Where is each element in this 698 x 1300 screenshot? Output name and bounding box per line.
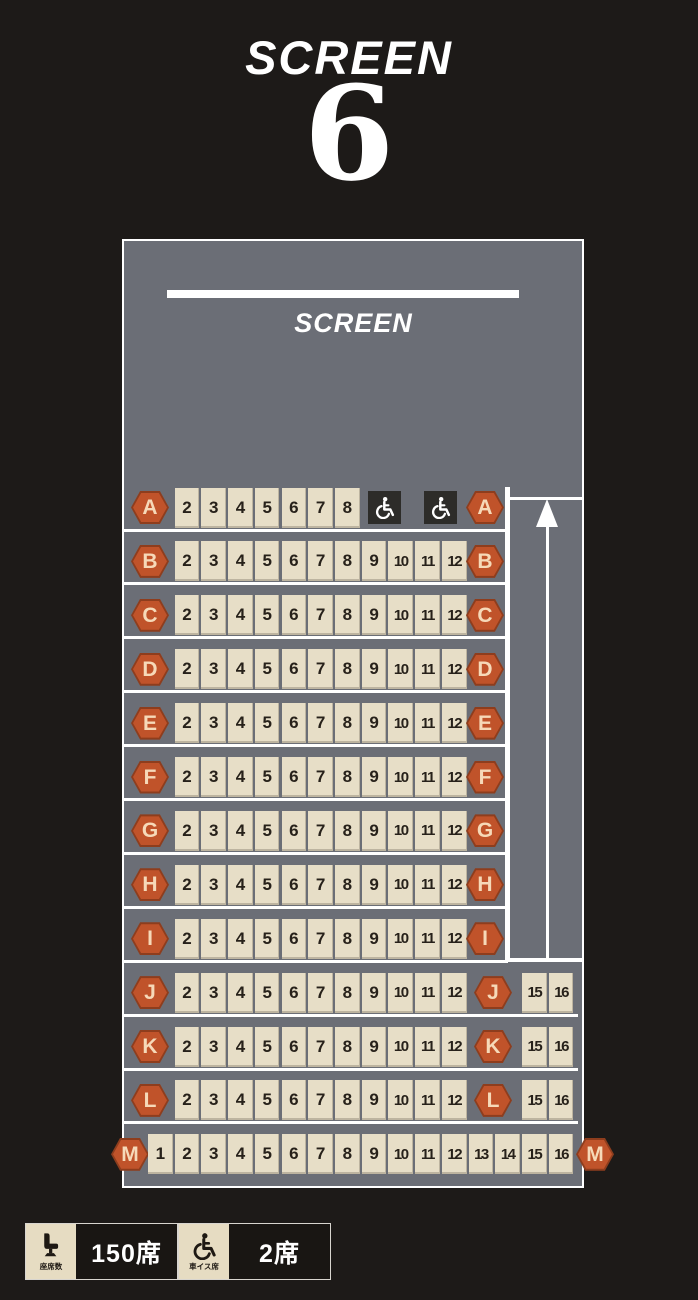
seat-F11[interactable]: 11 [415, 757, 440, 797]
seat-L16[interactable]: 16 [549, 1080, 574, 1120]
seat-B6[interactable]: 6 [282, 541, 307, 581]
seat-A3[interactable]: 3 [201, 488, 226, 528]
seat-F6[interactable]: 6 [282, 757, 307, 797]
seat-M1[interactable]: 1 [148, 1134, 173, 1174]
seat-F7[interactable]: 7 [308, 757, 333, 797]
row-badge-inner: E [133, 709, 167, 738]
seat-E10[interactable]: 10 [388, 703, 413, 743]
seat-L8[interactable]: 8 [335, 1080, 360, 1120]
seat-number: 3 [209, 875, 218, 895]
seat-E12[interactable]: 12 [442, 703, 467, 743]
seat-number: 5 [262, 875, 271, 895]
seat-M10[interactable]: 10 [388, 1134, 413, 1174]
seat-number: 6 [289, 498, 298, 518]
seat-K6[interactable]: 6 [282, 1027, 307, 1067]
seat-J16[interactable]: 16 [549, 973, 574, 1013]
seat-H8[interactable]: 8 [335, 865, 360, 905]
seat-number: 10 [394, 769, 408, 786]
seat-H10[interactable]: 10 [388, 865, 413, 905]
seat-E7[interactable]: 7 [308, 703, 333, 743]
seat-number: 16 [554, 984, 568, 1001]
row-A-badge-right: A [466, 491, 504, 524]
row-badge-inner: H [133, 870, 167, 899]
seat-number: 2 [182, 551, 191, 571]
seat-number: 11 [421, 661, 434, 678]
seat-E6[interactable]: 6 [282, 703, 307, 743]
seat-C6[interactable]: 6 [282, 595, 307, 635]
seat-number: 7 [316, 1144, 325, 1164]
seat-number: 8 [343, 1090, 352, 1110]
seat-H5[interactable]: 5 [255, 865, 280, 905]
seat-number: 10 [394, 661, 408, 678]
seat-H6[interactable]: 6 [282, 865, 307, 905]
seat-number: 8 [343, 498, 352, 518]
seat-number: 1 [156, 1144, 165, 1164]
seat-L15[interactable]: 15 [522, 1080, 547, 1120]
seat-F5[interactable]: 5 [255, 757, 280, 797]
seat-D2[interactable]: 2 [175, 649, 200, 689]
seat-E11[interactable]: 11 [415, 703, 440, 743]
seat-number: 9 [369, 1144, 378, 1164]
seat-number: 7 [316, 821, 325, 841]
seat-A4[interactable]: 4 [228, 488, 253, 528]
row-badge-inner: E [468, 709, 502, 738]
seat-C8[interactable]: 8 [335, 595, 360, 635]
row-label: B [477, 551, 492, 572]
row-L-underline [124, 1121, 578, 1124]
row-badge-inner: D [468, 655, 502, 684]
seat-K11[interactable]: 11 [415, 1027, 440, 1067]
seat-number: 10 [394, 607, 408, 624]
seat-L11[interactable]: 11 [415, 1080, 440, 1120]
seat-G9[interactable]: 9 [362, 811, 387, 851]
seat-number: 9 [369, 1090, 378, 1110]
seat-L5[interactable]: 5 [255, 1080, 280, 1120]
seat-B5[interactable]: 5 [255, 541, 280, 581]
seat-I3[interactable]: 3 [201, 919, 226, 959]
seat-B4[interactable]: 4 [228, 541, 253, 581]
seat-J4[interactable]: 4 [228, 973, 253, 1013]
seat-L2[interactable]: 2 [175, 1080, 200, 1120]
row-F-badge-left: F [131, 761, 169, 794]
seat-number: 3 [209, 767, 218, 787]
seat-number: 8 [343, 821, 352, 841]
seat-M5[interactable]: 5 [255, 1134, 280, 1174]
row-L-badge-left: L [131, 1084, 169, 1117]
seat-number: 7 [316, 929, 325, 949]
seat-K16[interactable]: 16 [549, 1027, 574, 1067]
seat-L12[interactable]: 12 [442, 1080, 467, 1120]
row-label: M [121, 1144, 139, 1165]
legend-seat-tile: 座席数 [26, 1224, 76, 1279]
seat-J10[interactable]: 10 [388, 973, 413, 1013]
seat-I10[interactable]: 10 [388, 919, 413, 959]
seat-number: 9 [369, 875, 378, 895]
seat-K3[interactable]: 3 [201, 1027, 226, 1067]
seat-H2[interactable]: 2 [175, 865, 200, 905]
seat-G2[interactable]: 2 [175, 811, 200, 851]
row-badge-inner: A [468, 493, 502, 522]
seat-number: 10 [394, 876, 408, 893]
seat-L10[interactable]: 10 [388, 1080, 413, 1120]
seat-B3[interactable]: 3 [201, 541, 226, 581]
seat-number: 3 [209, 659, 218, 679]
seat-G7[interactable]: 7 [308, 811, 333, 851]
row-label: I [482, 928, 488, 949]
seat-J15[interactable]: 15 [522, 973, 547, 1013]
seat-E2[interactable]: 2 [175, 703, 200, 743]
legend: 座席数 150席 車イス席 2席 [25, 1223, 331, 1280]
seat-number: 12 [447, 984, 461, 1001]
seat-number: 9 [369, 929, 378, 949]
row-C-underline [124, 636, 508, 639]
seat-E4[interactable]: 4 [228, 703, 253, 743]
seat-C11[interactable]: 11 [415, 595, 440, 635]
seat-D3[interactable]: 3 [201, 649, 226, 689]
seat-number: 3 [209, 1037, 218, 1057]
seat-A7[interactable]: 7 [308, 488, 333, 528]
seat-L6[interactable]: 6 [282, 1080, 307, 1120]
row-badge-inner: J [476, 978, 510, 1007]
seat-number: 12 [447, 769, 461, 786]
seat-number: 10 [394, 715, 408, 732]
seat-number: 4 [236, 1090, 245, 1110]
wheelchair-seat-2[interactable] [424, 491, 457, 524]
row-K-underline [124, 1068, 578, 1071]
seat-B9[interactable]: 9 [362, 541, 387, 581]
seat-M13[interactable]: 13 [469, 1134, 494, 1174]
seat-number: 7 [316, 498, 325, 518]
row-I-badge-left: I [131, 922, 169, 955]
row-label: J [487, 982, 499, 1003]
seat-H3[interactable]: 3 [201, 865, 226, 905]
seat-number: 2 [182, 659, 191, 679]
seat-H12[interactable]: 12 [442, 865, 467, 905]
seat-number: 6 [289, 929, 298, 949]
legend-seat-count: 150席 [76, 1224, 177, 1279]
seat-J12[interactable]: 12 [442, 973, 467, 1013]
seat-number: 3 [209, 1090, 218, 1110]
seat-number: 6 [289, 551, 298, 571]
seat-I11[interactable]: 11 [415, 919, 440, 959]
seat-I12[interactable]: 12 [442, 919, 467, 959]
wheelchair-seat-1[interactable] [368, 491, 401, 524]
seat-number: 9 [369, 551, 378, 571]
seat-G6[interactable]: 6 [282, 811, 307, 851]
seat-A8[interactable]: 8 [335, 488, 360, 528]
seat-H7[interactable]: 7 [308, 865, 333, 905]
seat-number: 10 [394, 930, 408, 947]
row-A-badge-left: A [131, 491, 169, 524]
seat-C5[interactable]: 5 [255, 595, 280, 635]
row-badge-inner: F [468, 763, 502, 792]
seat-G8[interactable]: 8 [335, 811, 360, 851]
seat-number: 10 [394, 1038, 408, 1055]
seat-K9[interactable]: 9 [362, 1027, 387, 1067]
seat-number: 7 [316, 1090, 325, 1110]
seat-number: 5 [262, 713, 271, 733]
seat-number: 6 [289, 875, 298, 895]
seat-number: 8 [343, 767, 352, 787]
seat-A5[interactable]: 5 [255, 488, 280, 528]
seat-D8[interactable]: 8 [335, 649, 360, 689]
seat-L4[interactable]: 4 [228, 1080, 253, 1120]
seat-number: 16 [554, 1146, 568, 1163]
seat-number: 15 [528, 984, 542, 1001]
seat-F2[interactable]: 2 [175, 757, 200, 797]
seat-E8[interactable]: 8 [335, 703, 360, 743]
seat-M8[interactable]: 8 [335, 1134, 360, 1174]
seat-G10[interactable]: 10 [388, 811, 413, 851]
seat-number: 6 [289, 1090, 298, 1110]
seat-K2[interactable]: 2 [175, 1027, 200, 1067]
seat-I2[interactable]: 2 [175, 919, 200, 959]
seat-number: 11 [421, 1146, 434, 1163]
seat-H9[interactable]: 9 [362, 865, 387, 905]
row-label: E [143, 713, 157, 734]
seat-E3[interactable]: 3 [201, 703, 226, 743]
seat-number: 6 [289, 605, 298, 625]
seat-K10[interactable]: 10 [388, 1027, 413, 1067]
seat-number: 12 [447, 661, 461, 678]
seat-F8[interactable]: 8 [335, 757, 360, 797]
seat-number: 10 [394, 553, 408, 570]
seat-F12[interactable]: 12 [442, 757, 467, 797]
seat-D12[interactable]: 12 [442, 649, 467, 689]
row-G-badge-left: G [131, 814, 169, 847]
seat-number: 12 [447, 553, 461, 570]
seat-number: 2 [182, 929, 191, 949]
seat-K8[interactable]: 8 [335, 1027, 360, 1067]
seat-number: 2 [182, 821, 191, 841]
seat-J9[interactable]: 9 [362, 973, 387, 1013]
seat-number: 5 [262, 605, 271, 625]
seat-J5[interactable]: 5 [255, 973, 280, 1013]
seat-number: 3 [209, 551, 218, 571]
seat-M16[interactable]: 16 [549, 1134, 574, 1174]
row-badge-inner: D [133, 655, 167, 684]
seat-number: 4 [236, 551, 245, 571]
seat-number: 2 [182, 875, 191, 895]
seat-G5[interactable]: 5 [255, 811, 280, 851]
seat-number: 11 [421, 822, 434, 839]
seat-G4[interactable]: 4 [228, 811, 253, 851]
row-badge-inner: K [476, 1032, 510, 1061]
seat-M14[interactable]: 14 [495, 1134, 520, 1174]
seat-number: 9 [369, 713, 378, 733]
seat-number: 11 [421, 930, 434, 947]
seat-B10[interactable]: 10 [388, 541, 413, 581]
row-I-badge-right: I [466, 922, 504, 955]
seat-M11[interactable]: 11 [415, 1134, 440, 1174]
row-label: G [142, 820, 158, 841]
seat-E5[interactable]: 5 [255, 703, 280, 743]
row-label: F [479, 767, 492, 788]
seat-number: 3 [209, 605, 218, 625]
seat-number: 4 [236, 983, 245, 1003]
seat-number: 4 [236, 713, 245, 733]
seat-number: 7 [316, 767, 325, 787]
seat-C12[interactable]: 12 [442, 595, 467, 635]
seat-J2[interactable]: 2 [175, 973, 200, 1013]
seat-K4[interactable]: 4 [228, 1027, 253, 1067]
row-B-underline [124, 582, 508, 585]
seat-number: 7 [316, 659, 325, 679]
row-H-badge-left: H [131, 868, 169, 901]
seat-number: 11 [421, 1092, 434, 1109]
seat-C9[interactable]: 9 [362, 595, 387, 635]
seat-number: 10 [394, 984, 408, 1001]
seat-K12[interactable]: 12 [442, 1027, 467, 1067]
seat-D6[interactable]: 6 [282, 649, 307, 689]
seat-B12[interactable]: 12 [442, 541, 467, 581]
row-badge-inner: G [468, 816, 502, 845]
seat-K7[interactable]: 7 [308, 1027, 333, 1067]
seat-J3[interactable]: 3 [201, 973, 226, 1013]
seat-C7[interactable]: 7 [308, 595, 333, 635]
seat-number: 3 [209, 498, 218, 518]
seat-I9[interactable]: 9 [362, 919, 387, 959]
seat-L9[interactable]: 9 [362, 1080, 387, 1120]
seat-B8[interactable]: 8 [335, 541, 360, 581]
seat-J11[interactable]: 11 [415, 973, 440, 1013]
seat-number: 5 [262, 821, 271, 841]
seat-D10[interactable]: 10 [388, 649, 413, 689]
seat-F3[interactable]: 3 [201, 757, 226, 797]
seat-I4[interactable]: 4 [228, 919, 253, 959]
seat-number: 7 [316, 551, 325, 571]
seat-M15[interactable]: 15 [522, 1134, 547, 1174]
seat-H11[interactable]: 11 [415, 865, 440, 905]
seat-I8[interactable]: 8 [335, 919, 360, 959]
seat-C10[interactable]: 10 [388, 595, 413, 635]
seat-M9[interactable]: 9 [362, 1134, 387, 1174]
seat-K5[interactable]: 5 [255, 1027, 280, 1067]
seat-M12[interactable]: 12 [442, 1134, 467, 1174]
seat-number: 12 [447, 876, 461, 893]
seat-L7[interactable]: 7 [308, 1080, 333, 1120]
seat-I5[interactable]: 5 [255, 919, 280, 959]
legend-wheelchair-tile: 車イス席 [177, 1224, 229, 1279]
seat-number: 6 [289, 1144, 298, 1164]
seat-B2[interactable]: 2 [175, 541, 200, 581]
seat-number: 4 [236, 605, 245, 625]
row-badge-inner: M [578, 1140, 612, 1169]
seat-B11[interactable]: 11 [415, 541, 440, 581]
seat-number: 7 [316, 875, 325, 895]
seat-C3[interactable]: 3 [201, 595, 226, 635]
seat-number: 11 [421, 1038, 434, 1055]
seat-number: 8 [343, 983, 352, 1003]
seat-G3[interactable]: 3 [201, 811, 226, 851]
seat-number: 7 [316, 713, 325, 733]
seat-rows: A2345678AB23456789101112BC23456789101112… [0, 0, 698, 1300]
seat-number: 4 [236, 498, 245, 518]
row-label: F [144, 767, 157, 788]
seat-number: 7 [316, 605, 325, 625]
seat-number: 12 [447, 1146, 461, 1163]
seat-M4[interactable]: 4 [228, 1134, 253, 1174]
seat-number: 3 [209, 713, 218, 733]
row-E-underline [124, 744, 508, 747]
row-label: C [142, 605, 157, 626]
seat-D4[interactable]: 4 [228, 649, 253, 689]
seat-I7[interactable]: 7 [308, 919, 333, 959]
row-label: E [478, 713, 492, 734]
seat-number: 4 [236, 929, 245, 949]
row-label: M [586, 1144, 604, 1165]
seat-J8[interactable]: 8 [335, 973, 360, 1013]
seat-C4[interactable]: 4 [228, 595, 253, 635]
seat-number: 11 [421, 769, 434, 786]
seat-M6[interactable]: 6 [282, 1134, 307, 1174]
seat-number: 4 [236, 659, 245, 679]
seat-number: 10 [394, 822, 408, 839]
row-badge-inner: G [133, 816, 167, 845]
seat-D11[interactable]: 11 [415, 649, 440, 689]
seat-J7[interactable]: 7 [308, 973, 333, 1013]
seat-M2[interactable]: 2 [175, 1134, 200, 1174]
row-label: K [142, 1036, 157, 1057]
seat-L3[interactable]: 3 [201, 1080, 226, 1120]
seat-F9[interactable]: 9 [362, 757, 387, 797]
seatmap-screenshot: SCREEN 6 SCREEN A2345678AB23456789101112… [0, 0, 698, 1300]
row-L-badge-right: L [474, 1084, 512, 1117]
seat-C2[interactable]: 2 [175, 595, 200, 635]
seat-number: 7 [316, 1037, 325, 1057]
row-C-badge-left: C [131, 599, 169, 632]
seat-number: 15 [528, 1146, 542, 1163]
seat-J6[interactable]: 6 [282, 973, 307, 1013]
seat-G12[interactable]: 12 [442, 811, 467, 851]
seat-number: 4 [236, 767, 245, 787]
seat-E9[interactable]: 9 [362, 703, 387, 743]
seat-I6[interactable]: 6 [282, 919, 307, 959]
row-badge-inner: I [133, 924, 167, 953]
seat-number: 4 [236, 875, 245, 895]
seat-number: 9 [369, 659, 378, 679]
reclining-seat-icon [37, 1232, 65, 1260]
seat-number: 8 [343, 929, 352, 949]
row-label: K [485, 1036, 500, 1057]
seat-G11[interactable]: 11 [415, 811, 440, 851]
seat-number: 8 [343, 1144, 352, 1164]
seat-A6[interactable]: 6 [282, 488, 307, 528]
seat-D5[interactable]: 5 [255, 649, 280, 689]
seat-M3[interactable]: 3 [201, 1134, 226, 1174]
seat-H4[interactable]: 4 [228, 865, 253, 905]
seat-number: 5 [262, 929, 271, 949]
row-J-badge-right: J [474, 976, 512, 1009]
seat-B7[interactable]: 7 [308, 541, 333, 581]
seat-M7[interactable]: 7 [308, 1134, 333, 1174]
seat-F10[interactable]: 10 [388, 757, 413, 797]
legend-seat-caption: 座席数 [40, 1261, 63, 1272]
row-H-underline [124, 906, 508, 909]
seat-number: 12 [447, 715, 461, 732]
seat-D7[interactable]: 7 [308, 649, 333, 689]
seat-number: 6 [289, 767, 298, 787]
seat-number: 12 [447, 930, 461, 947]
seat-number: 2 [182, 1090, 191, 1110]
seat-number: 3 [209, 983, 218, 1003]
row-H-badge-right: H [466, 868, 504, 901]
seat-D9[interactable]: 9 [362, 649, 387, 689]
seat-F4[interactable]: 4 [228, 757, 253, 797]
seat-number: 8 [343, 551, 352, 571]
seat-K15[interactable]: 15 [522, 1027, 547, 1067]
seat-A2[interactable]: 2 [175, 488, 200, 528]
